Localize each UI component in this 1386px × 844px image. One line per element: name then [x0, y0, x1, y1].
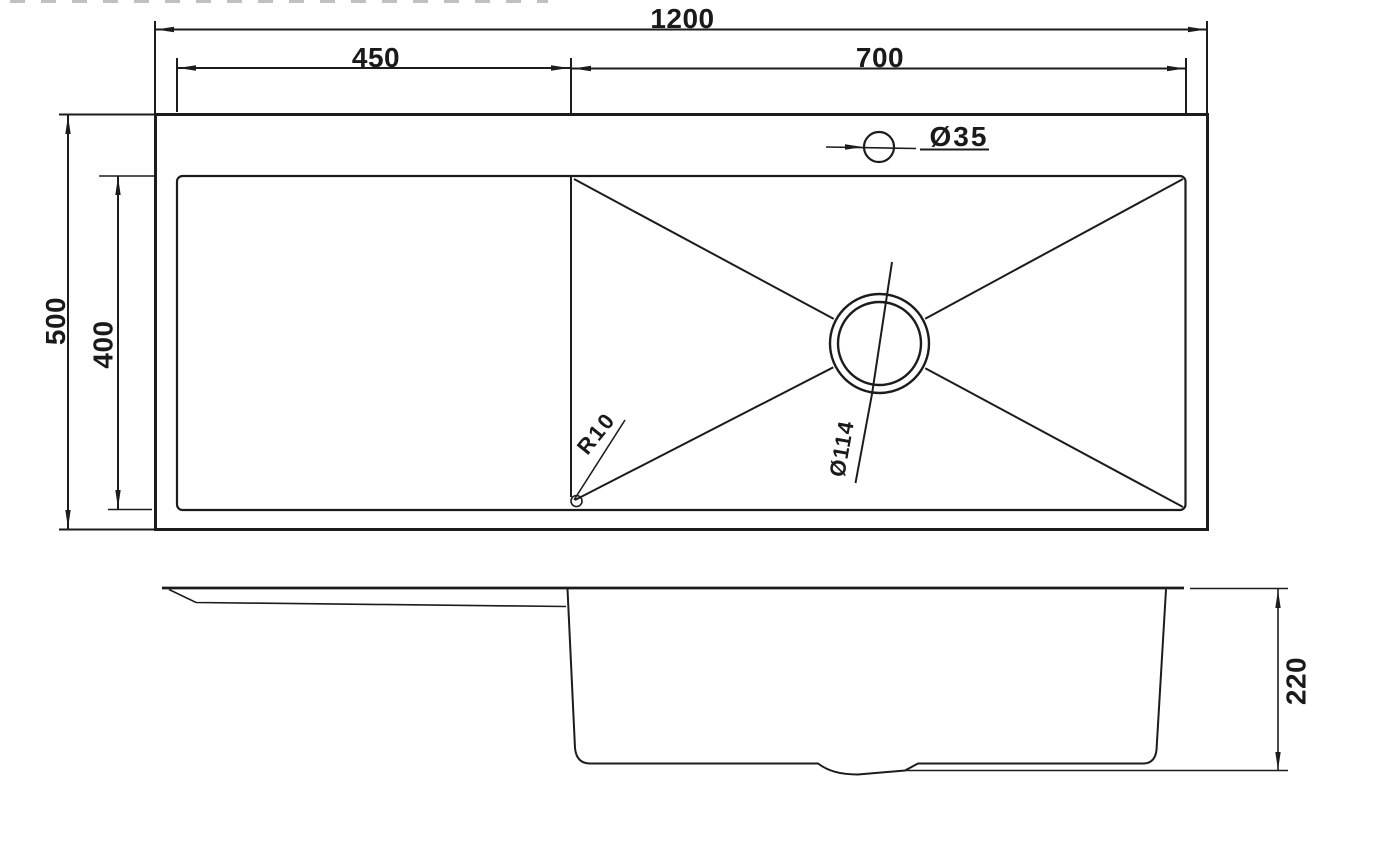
- svg-text:700: 700: [856, 42, 904, 73]
- svg-text:500: 500: [40, 297, 71, 345]
- svg-text:Ø35: Ø35: [930, 121, 989, 152]
- svg-text:220: 220: [1281, 657, 1312, 705]
- svg-text:400: 400: [88, 320, 119, 368]
- svg-text:1200: 1200: [650, 3, 714, 34]
- svg-text:450: 450: [352, 42, 400, 73]
